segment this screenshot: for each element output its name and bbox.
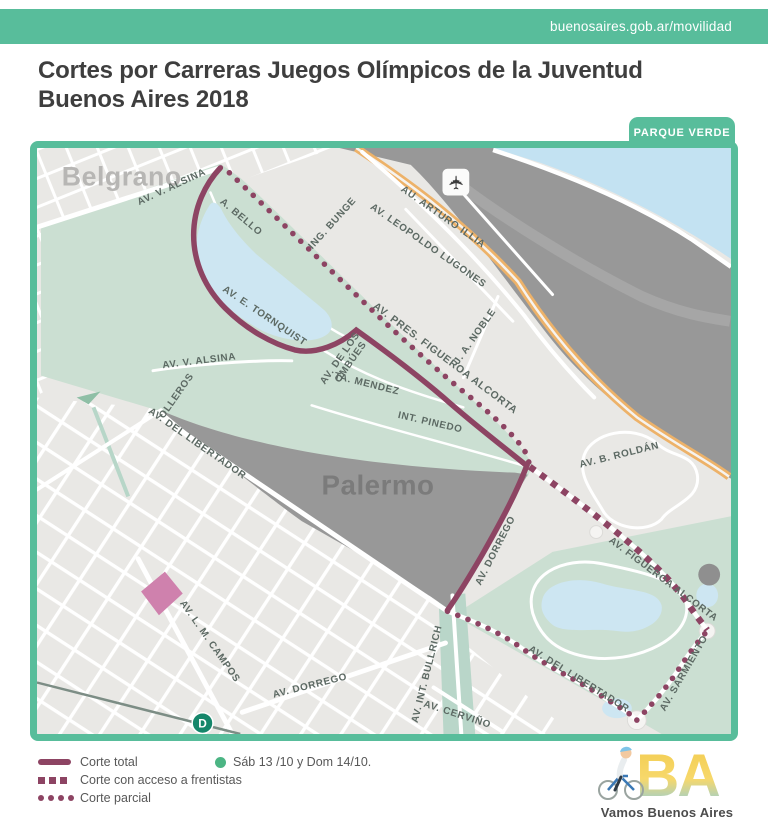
dashed-line-swatch — [38, 777, 74, 784]
gov-url[interactable]: buenosaires.gob.ar/movilidad — [550, 19, 732, 34]
svg-text:✈: ✈ — [446, 175, 467, 191]
legend-label: Corte parcial — [80, 791, 151, 805]
brand-logo: BA Vamos Buenos Aires — [592, 740, 742, 820]
brand-slogan: Vamos Buenos Aires — [592, 805, 742, 820]
airport-icon: ✈ — [442, 169, 469, 196]
dotted-line-swatch — [38, 795, 74, 801]
map-canvas: Belgrano Palermo ✈ AV. V. ALSINA A. BELL… — [37, 148, 731, 734]
monument-gray-circle — [698, 564, 720, 586]
legend-item-corte-frentistas: Corte con acceso a frentistas — [38, 771, 242, 789]
legend-label: Corte total — [80, 755, 138, 769]
legend-label: Corte con acceso a frentistas — [80, 773, 242, 787]
legend-item-corte-total: Corte total — [38, 753, 242, 771]
title-line1: Cortes por Carreras Juegos Olímpicos de … — [38, 56, 738, 85]
schedule-label: Sáb 13 /10 y Dom 14/10. — [233, 755, 371, 769]
page-title: Cortes por Carreras Juegos Olímpicos de … — [38, 56, 738, 114]
schedule: Sáb 13 /10 y Dom 14/10. — [215, 755, 371, 769]
legend-item-corte-parcial: Corte parcial — [38, 789, 242, 807]
district-label-palermo: Palermo — [322, 469, 435, 500]
solid-line-swatch — [38, 759, 74, 765]
svg-text:D: D — [198, 717, 207, 731]
top-banner: buenosaires.gob.ar/movilidad — [0, 9, 768, 44]
ba-logo: BA — [592, 740, 742, 802]
subway-d-marker: D — [192, 713, 213, 734]
ba-letters: BA — [636, 742, 719, 802]
map: Belgrano Palermo ✈ AV. V. ALSINA A. BELL… — [30, 141, 738, 741]
schedule-dot-icon — [215, 757, 226, 768]
title-line2: Buenos Aires 2018 — [38, 85, 738, 114]
legend: Corte total Corte con acceso a frentista… — [38, 753, 242, 807]
